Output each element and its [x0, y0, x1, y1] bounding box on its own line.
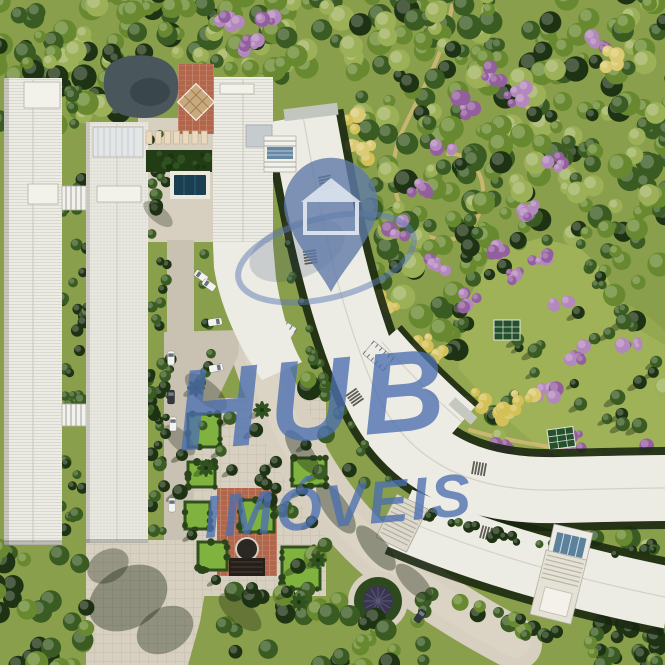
tree-canopy-light	[211, 55, 219, 63]
tree-canopy-light	[148, 230, 153, 235]
tree-canopy-light	[378, 239, 390, 251]
tree-canopy-light	[79, 621, 88, 630]
tree-canopy-light	[534, 136, 545, 147]
tree-canopy-light	[556, 40, 566, 50]
green-wall-plant	[195, 164, 201, 170]
tree-canopy-light	[351, 108, 360, 117]
tree-canopy-light	[359, 618, 367, 626]
tree-canopy-light	[260, 641, 271, 652]
tree-canopy-light	[421, 134, 430, 143]
deck-chair	[201, 131, 207, 144]
tree-canopy-light	[441, 118, 455, 132]
tree-canopy-light	[415, 107, 424, 116]
tree-canopy-light	[194, 48, 203, 57]
tree-canopy-light	[388, 645, 395, 652]
tree-canopy-light	[347, 64, 357, 74]
tree-canopy-light	[72, 325, 79, 332]
tree-canopy-light	[492, 153, 504, 165]
palm-center	[297, 600, 301, 604]
tree-canopy-light	[287, 46, 299, 58]
tree-canopy-light	[390, 51, 402, 63]
building-2	[86, 122, 148, 543]
tree-canopy-light	[16, 43, 28, 55]
tree-canopy-light	[427, 3, 439, 15]
deck-chair	[192, 131, 198, 144]
tree-canopy-light	[44, 56, 52, 64]
tree-canopy-light	[45, 33, 56, 44]
tree-canopy-light	[471, 388, 476, 393]
tree-canopy-light	[528, 107, 537, 116]
tree-canopy-light	[511, 233, 520, 242]
tree-canopy-light	[384, 96, 391, 103]
tree-canopy-light	[313, 21, 325, 33]
tree-canopy-light	[616, 530, 626, 540]
tree-canopy-light	[379, 163, 391, 175]
tree-canopy-light	[651, 657, 658, 664]
tree-canopy-light	[499, 404, 504, 409]
tree-canopy-light	[629, 129, 639, 139]
tree-canopy-light	[603, 46, 609, 52]
tree-canopy-light	[546, 111, 553, 118]
tree-canopy-light	[357, 635, 364, 642]
tree-canopy-light	[602, 244, 611, 253]
tree-canopy-light	[610, 48, 619, 57]
tree-canopy-light	[382, 222, 391, 231]
tree-canopy-light	[523, 22, 534, 33]
tree-canopy-light	[226, 583, 237, 594]
tree-canopy-light	[160, 371, 166, 377]
tree-canopy-light	[588, 261, 592, 265]
tree-canopy-light	[377, 621, 389, 633]
tree-canopy-light	[157, 174, 162, 179]
tree-canopy-light	[110, 53, 117, 60]
tree-canopy-light	[516, 614, 522, 620]
tree-canopy-light	[519, 81, 527, 89]
tree-canopy-light	[424, 220, 431, 227]
deck-chair	[183, 131, 189, 144]
tree-canopy-light	[172, 47, 179, 54]
tree-canopy-light	[633, 419, 642, 428]
tree-canopy-light	[306, 325, 310, 329]
tree-canopy-light	[563, 136, 571, 144]
tree-canopy-light	[577, 443, 583, 449]
tree-canopy-light	[528, 256, 534, 262]
tree-canopy-light	[513, 539, 517, 543]
car	[168, 498, 175, 512]
tree-canopy-light	[415, 33, 425, 43]
tree-canopy-light	[441, 266, 447, 272]
sky-bridge-left-b	[62, 404, 86, 426]
tree-canopy-light	[22, 58, 29, 65]
tree-canopy-light	[200, 250, 205, 255]
tree-canopy-light	[448, 144, 453, 149]
tree-canopy-light	[465, 215, 472, 222]
building-1	[4, 78, 62, 545]
tree-canopy-light	[611, 391, 619, 399]
greenhouse-roof	[547, 426, 576, 449]
tree-canopy-light	[577, 356, 583, 362]
tree-canopy-light	[458, 319, 464, 325]
tree-canopy-light	[573, 307, 580, 314]
tree-canopy-light	[627, 219, 639, 231]
tree-canopy-light	[458, 301, 465, 308]
tree-canopy-light	[649, 368, 655, 374]
tree-canopy-light	[351, 15, 363, 27]
tree-canopy-light	[282, 587, 289, 594]
hedge-shrub	[182, 522, 187, 527]
roof-louver-box	[93, 127, 143, 157]
tree-canopy-light	[163, 414, 167, 418]
tree-canopy-light	[331, 593, 341, 603]
tree-canopy-light	[500, 208, 507, 215]
tree-canopy-light	[51, 547, 62, 558]
tree-canopy-light	[525, 395, 530, 400]
tree-canopy-light	[555, 93, 566, 104]
tree-canopy-light	[651, 357, 658, 364]
tree-canopy-light	[243, 35, 249, 41]
tree-canopy-light	[635, 343, 640, 348]
tree-canopy-light	[341, 607, 353, 619]
tree-canopy-light	[331, 35, 338, 42]
tree-canopy-light	[73, 66, 87, 80]
tree-canopy-light	[29, 4, 39, 14]
tree-canopy-light	[634, 376, 642, 384]
tree-canopy-light	[431, 140, 438, 147]
tree-canopy-light	[577, 240, 582, 245]
tree-canopy-light	[587, 110, 594, 117]
tree-canopy-light	[27, 653, 40, 665]
tree-canopy-light	[445, 283, 458, 296]
tree-canopy-light	[590, 38, 596, 44]
tree-canopy-light	[157, 359, 164, 366]
tree-canopy-light	[251, 34, 259, 42]
tree-canopy-light	[488, 246, 495, 253]
tree-canopy-light	[599, 281, 604, 286]
tree-canopy-light	[485, 270, 491, 276]
tree-canopy-light	[149, 525, 156, 532]
tree-canopy-light	[78, 484, 84, 490]
tree-canopy-light	[174, 485, 183, 494]
tree-canopy-light	[650, 547, 654, 551]
tree-canopy-light	[632, 276, 640, 284]
tree-canopy-light	[446, 42, 455, 51]
tree-canopy-light	[69, 278, 74, 283]
lounge-chairs	[146, 131, 207, 144]
tree-canopy-light	[601, 61, 608, 68]
tree-canopy-light	[596, 272, 602, 278]
tree-canopy-light	[511, 87, 517, 93]
tree-canopy-light	[542, 156, 549, 163]
tree-canopy-light	[401, 75, 412, 86]
tree-canopy-light	[154, 441, 159, 446]
deck-chair	[164, 131, 170, 144]
hedge-shrub	[280, 550, 285, 555]
tree-canopy-light	[512, 182, 524, 194]
tree-canopy-light	[629, 546, 634, 551]
swimming-pool	[174, 175, 206, 195]
tree-canopy-light	[256, 14, 261, 19]
tree-canopy-light	[157, 258, 162, 263]
tree-canopy-light	[551, 122, 558, 129]
tree-canopy-light	[617, 409, 624, 416]
tree-canopy-light	[627, 148, 637, 158]
tree-canopy-light	[508, 277, 513, 282]
tree-canopy-light	[640, 545, 647, 552]
tree-canopy-light	[357, 91, 364, 98]
tree-canopy-light	[526, 153, 538, 165]
tree-canopy-light	[151, 189, 158, 196]
tree-canopy-light	[484, 61, 492, 69]
tree-canopy-light	[439, 61, 449, 71]
tree-canopy-light	[635, 40, 647, 52]
tree-canopy-light	[590, 56, 598, 64]
tree-canopy-light	[521, 631, 527, 637]
tree-canopy-light	[599, 221, 609, 231]
tree-canopy-light	[635, 648, 644, 657]
brand-line1: HUB	[170, 324, 459, 476]
tree-canopy-light	[393, 286, 407, 300]
tree-canopy-light	[148, 179, 154, 185]
tree-canopy-light	[554, 164, 559, 169]
tree-canopy-light	[400, 231, 406, 237]
tree-canopy-light	[590, 334, 596, 340]
tree-canopy-light	[433, 263, 439, 269]
tree-canopy-light	[79, 317, 86, 324]
tree-canopy-light	[585, 156, 594, 165]
tree-canopy-light	[73, 471, 78, 476]
tree-canopy-light	[546, 60, 558, 72]
palm-center	[316, 558, 320, 562]
tree-canopy-light	[585, 30, 593, 38]
green-wall-plant	[202, 165, 206, 169]
sky-bridge-top	[264, 136, 296, 172]
tree-canopy-light	[516, 94, 524, 102]
tree-canopy-light	[418, 655, 425, 662]
greenhouse-roof	[494, 320, 520, 340]
tree-canopy-light	[543, 235, 549, 241]
tree-canopy-light	[188, 530, 194, 536]
tree-canopy-light	[561, 183, 568, 190]
green-wall-plant	[205, 153, 211, 159]
car	[169, 417, 176, 431]
tree-canopy-light	[610, 246, 617, 253]
deck-chair	[146, 131, 152, 144]
tree-canopy-light	[79, 268, 84, 273]
car-body	[169, 417, 176, 431]
aerial-scene: HUB IMÓVEIS	[0, 0, 665, 665]
tree-canopy-light	[411, 305, 425, 319]
tree-canopy-light	[649, 254, 662, 267]
tree-canopy-light	[490, 135, 504, 149]
tree-canopy-light	[69, 482, 74, 487]
tree-canopy-light	[506, 269, 510, 273]
tree-canopy-light	[593, 281, 598, 286]
tree-canopy-light	[578, 103, 588, 113]
roof-bulkhead	[24, 82, 60, 108]
tree-canopy-light	[243, 61, 253, 71]
tree-canopy-light	[484, 4, 491, 11]
tree-canopy-light	[481, 124, 491, 134]
tree-canopy-light	[609, 200, 617, 208]
tree-canopy-light	[212, 576, 218, 582]
tree-canopy-light	[603, 414, 609, 420]
tree-canopy-light	[493, 430, 501, 438]
tree-canopy-light	[69, 392, 74, 397]
roof-bulkhead	[28, 184, 58, 204]
tree-canopy-light	[376, 13, 388, 25]
roof-bulkhead	[97, 186, 141, 202]
green-wall-plant	[157, 151, 163, 157]
tree-canopy-light	[76, 395, 83, 402]
tree-canopy-light	[562, 296, 569, 303]
tree-canopy-light	[356, 143, 364, 151]
tree-canopy-light	[465, 152, 477, 164]
car-windshield	[169, 500, 174, 503]
tree-canopy-light	[530, 368, 536, 374]
green-wall-plant	[178, 157, 185, 164]
tree-canopy-light	[159, 481, 165, 487]
green-wall-plant	[173, 162, 180, 169]
tree-canopy-light	[156, 298, 162, 304]
tree-canopy-light	[275, 58, 284, 67]
tree-canopy-light	[12, 8, 21, 17]
tree-canopy-light	[617, 418, 625, 426]
tree-canopy-light	[392, 303, 396, 307]
tree-canopy-light	[575, 398, 582, 405]
deck-chair	[155, 131, 161, 144]
tree-canopy-light	[452, 91, 461, 100]
tree-canopy-light	[407, 188, 413, 194]
deck-chair	[174, 131, 180, 144]
tree-canopy-light	[137, 45, 147, 55]
tree-canopy-light	[524, 213, 529, 218]
tree-canopy-light	[569, 24, 582, 37]
masterplan-render: HUB IMÓVEIS	[0, 0, 665, 665]
car-body	[168, 498, 175, 512]
tree-canopy-light	[549, 298, 554, 303]
tree-canopy-light	[350, 124, 356, 130]
tree-canopy-light	[75, 346, 81, 352]
tree-canopy-light	[247, 583, 254, 590]
tree-canopy-light	[377, 107, 390, 120]
roof-bulkhead	[220, 84, 254, 94]
tree-canopy-light	[508, 532, 514, 538]
tree-canopy-light	[493, 39, 500, 46]
tree-canopy-light	[18, 601, 29, 612]
tree-canopy-light	[379, 28, 390, 39]
tree-canopy-light	[162, 275, 168, 281]
hedge-shrub	[279, 556, 285, 562]
tree-canopy-light	[472, 294, 478, 300]
tree-canopy-light	[585, 637, 592, 644]
tree-canopy-light	[617, 15, 628, 26]
tree-canopy-light	[63, 460, 68, 465]
tree-canopy-light	[541, 13, 553, 25]
tree-canopy-light	[504, 92, 508, 96]
tree-canopy-light	[508, 99, 513, 104]
tree-canopy-light	[166, 367, 170, 371]
tree-canopy-light	[159, 285, 164, 290]
tree-canopy-light	[251, 42, 256, 47]
tree-canopy-light	[390, 229, 396, 235]
tree-canopy-light	[588, 144, 597, 153]
green-wall-plant	[164, 157, 172, 165]
tree-canopy-light	[129, 24, 140, 35]
tree-canopy-light	[510, 405, 517, 412]
tree-canopy-light	[427, 165, 434, 172]
tree-canopy-light	[359, 121, 371, 133]
pond-deep	[130, 78, 170, 106]
tree-canopy-light	[535, 43, 545, 53]
tree-canopy-light	[321, 1, 329, 9]
tree-canopy-light	[202, 319, 207, 324]
tree-canopy-light	[406, 10, 418, 22]
tree-canopy-light	[219, 11, 226, 18]
tree-canopy-light	[393, 202, 400, 209]
hedge-shrub	[204, 567, 209, 572]
tree-canopy-light	[461, 110, 467, 116]
tree-canopy-light	[67, 42, 79, 54]
tree-canopy-light	[572, 222, 581, 231]
tree-canopy-light	[232, 16, 240, 24]
tree-canopy-light	[380, 125, 391, 136]
tree-canopy-light	[64, 614, 74, 624]
tree-canopy-light	[616, 339, 625, 348]
tree-canopy-light	[398, 134, 410, 146]
tree-canopy-light	[475, 601, 482, 608]
tree-canopy-light	[610, 155, 624, 169]
tree-canopy-light	[550, 383, 558, 391]
tree-canopy-light	[529, 344, 537, 352]
tree-canopy-light	[43, 639, 54, 650]
tree-canopy-light	[230, 646, 238, 654]
tree-canopy-light	[277, 28, 289, 40]
tree-canopy-light	[459, 16, 473, 30]
garden-greenhouse	[494, 320, 520, 340]
glass-panel	[267, 147, 293, 159]
tree-canopy-light	[647, 104, 659, 116]
tree-canopy-light	[571, 380, 576, 385]
tree-canopy-light	[640, 186, 652, 198]
garden-greenhouse	[547, 426, 576, 449]
tree-canopy-light	[4, 577, 16, 589]
tree-canopy-light	[35, 31, 42, 38]
tree-canopy-light	[490, 75, 497, 82]
tree-canopy-light	[625, 40, 633, 48]
tree-canopy-light	[446, 212, 455, 221]
tree-canopy-light	[32, 638, 42, 648]
tree-canopy-light	[395, 71, 402, 78]
tree-canopy-light	[590, 628, 598, 636]
tree-canopy-light	[565, 353, 573, 361]
sky-bridge-left-a	[62, 186, 86, 210]
tree-canopy-light	[478, 51, 488, 61]
tree-canopy-light	[568, 183, 580, 195]
tree-canopy-light	[530, 201, 536, 207]
tree-canopy-light	[80, 601, 89, 610]
tree-canopy-light	[277, 605, 288, 616]
tree-canopy-light	[512, 125, 525, 138]
tree-canopy-light	[617, 315, 626, 324]
tree-canopy-light	[423, 117, 431, 125]
car-windshield	[170, 419, 175, 422]
tree-canopy-light	[72, 555, 83, 566]
tree-canopy-light	[551, 626, 558, 633]
tree-canopy-light	[554, 152, 560, 158]
tree-canopy-light	[423, 241, 433, 251]
watermark-brand-text: HUB IMÓVEIS	[170, 323, 476, 552]
tree-canopy-light	[578, 340, 586, 348]
